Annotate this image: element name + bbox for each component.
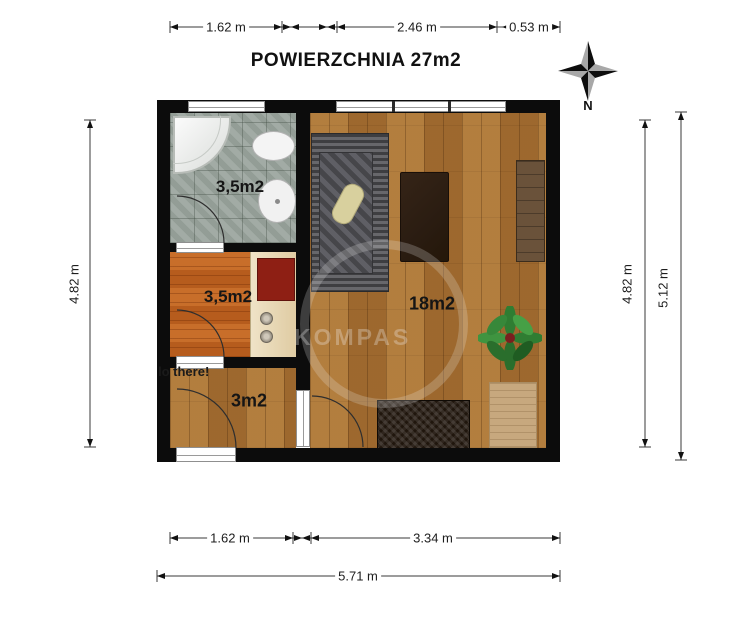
compass-north-label: N (576, 98, 600, 113)
dim-top-1: 1.62 m (203, 20, 249, 35)
floor-plan-page: POWIERZCHNIA 27m2 (0, 0, 743, 640)
dim-top-2: 2.46 m (394, 20, 440, 35)
potted-plant (478, 306, 542, 370)
toilet (252, 131, 295, 161)
wardrobe (516, 160, 545, 262)
entry-door-opening (176, 447, 236, 462)
room-label-kitchen: 3,5m2 (204, 287, 252, 307)
window-mullion (448, 101, 451, 112)
watermark-text: KOMPAS (294, 324, 411, 351)
dark-rug (377, 400, 470, 452)
window-mullion (392, 101, 395, 112)
annotation-text: lo there! (158, 364, 209, 379)
wall-left (157, 100, 170, 462)
beige-rug (489, 382, 537, 448)
bathroom-window (188, 101, 265, 112)
plant-pot-center (505, 333, 515, 343)
living-room-window (336, 101, 506, 112)
dim-top-3: 0.53 m (506, 20, 552, 35)
compass-rose-icon (556, 39, 620, 103)
dim-right-inner: 4.82 m (620, 261, 635, 307)
living-room-door-opening (296, 390, 310, 447)
room-label-bathroom: 3,5m2 (216, 177, 264, 197)
page-title: POWIERZCHNIA 27m2 (156, 50, 556, 72)
compass-star (558, 41, 618, 101)
cooktop (257, 258, 295, 301)
dim-right-outer: 5.12 m (656, 265, 671, 311)
bathroom-door-opening (176, 242, 224, 253)
dim-left: 4.82 m (67, 261, 82, 307)
wall-right (546, 100, 560, 462)
room-label-hall: 3m2 (231, 391, 267, 412)
dim-bottom-1: 1.62 m (207, 531, 253, 546)
dim-bottom-total: 5.71 m (335, 569, 381, 584)
burner-icon (260, 312, 273, 325)
sink-drain-dot (275, 199, 280, 204)
burner-icon (260, 330, 273, 343)
room-label-living-room: 18m2 (409, 294, 455, 315)
dim-bottom-2: 3.34 m (410, 531, 456, 546)
